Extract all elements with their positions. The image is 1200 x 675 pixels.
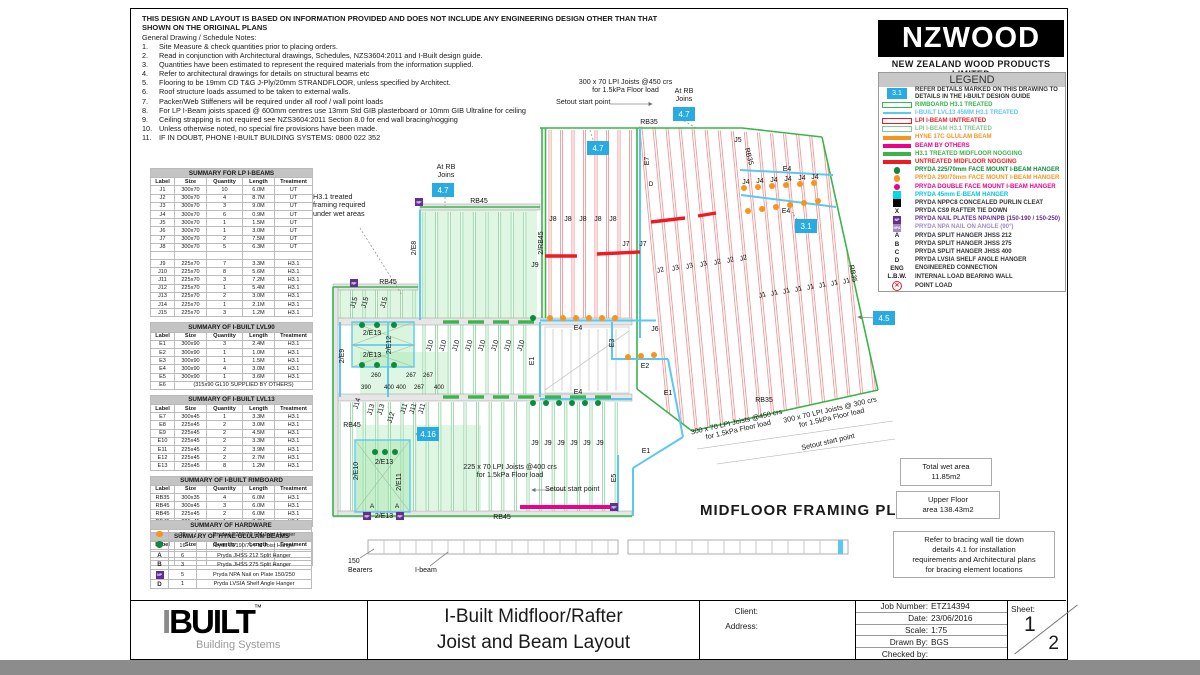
date-value: 23/06/2016 [931,613,973,623]
plan-label: J9 [583,440,591,447]
legend-label: PRYDA NPPC8 CONCEALED PURLIN CLEAT [915,200,1043,207]
hardware-row: A6Pryda JHSS 212 Split Hanger [151,551,312,560]
hanger-290-icon [745,208,751,214]
legend-label: PRYDA CS9 RAFTER TIE DOWN [915,208,1007,215]
plan-label: J2 [713,258,722,267]
table-row: E2300x9011.0MH3.1 [151,348,313,356]
plan-label: J7 [639,241,647,248]
hanger-290-icon [651,352,657,358]
plan-title: MIDFLOOR FRAMING PLAN [700,502,920,519]
client-label: Client: [700,606,758,616]
plan-label: 2/E13 [363,352,381,359]
job-number-value: ETZ14394 [931,601,970,611]
hanger-290-icon [586,315,592,321]
hanger-290-icon [759,206,765,212]
plan-label: J10 [452,339,462,352]
svg-text:NP: NP [398,515,404,519]
plan-label: E2 [641,363,650,370]
hanger-225-icon [530,315,536,321]
plan-label: J13 [377,403,387,416]
plan-label: J13 [367,403,377,416]
note-setout-top: Setout start point [556,98,610,106]
legend-label: LPI I-BEAM UNTREATED [915,118,986,125]
plan-label: RB35 [743,147,754,166]
table-row: J15225x7031.2MH3.1 [151,309,313,317]
hanger-290-icon [573,315,579,321]
table-row: J13225x7023.0MH3.1 [151,292,313,300]
plan-label: A [395,503,400,510]
plan-label: J9 [557,440,565,447]
plan-label: J9 [544,440,552,447]
plan-label: RB35 [755,397,773,404]
split-hanger-b-icon: B [157,561,161,568]
hanger-290-icon [547,315,553,321]
plan-label: 400 [396,385,407,391]
hardware-row: B3Pryda JHSS 275 Split Hanger [151,560,312,569]
legend-label: PRYDA NPA NAIL ON ANGLE (90°) [915,224,1013,231]
floor-area-box: Upper Floor area 138.43m2 [896,491,1000,519]
table-row: J4300x7060.9MUT [151,210,313,218]
hanger-225-icon [543,400,549,406]
plan-label: I-beam [415,567,437,574]
detail-reference-label: 4.7 [592,144,604,153]
detail-reference-label: 4.5 [878,314,890,323]
table-row: E8225x4523.0MH3.1 [151,421,313,429]
table-row: J11225x7037.2MH3.1 [151,276,313,284]
note-at-rb-joins-2: At RB Joins [663,87,705,104]
table-row: J9225x7073.3MH3.1 [151,260,313,268]
hanger-290-icon [612,315,618,321]
plan-label: RB45 [379,279,397,286]
notes-heading-1: THIS DESIGN AND LAYOUT IS BASED ON INFOR… [142,14,672,23]
note-h31-treated: H3.1 treated framing required under wet … [313,193,365,218]
legend-label: H3.1 TREATED MIDFLOOR NOGGING [915,150,1022,157]
plan-label: J9 [596,440,604,447]
plan-label: 2/E11 [396,473,403,491]
bearer-detail [360,540,848,566]
legend-label: HYNE 17C GLULAM BEAM [915,134,992,141]
hardware-row: NP5Pryda NPA Nail on Plate 150/250 [151,569,312,579]
drawing-title: I-Built Midfloor/Rafter Joist and Beam L… [368,601,700,659]
plan-label: D [649,181,654,188]
hanger-290-icon [638,353,644,359]
plan-label: 267 [414,385,425,391]
summary-table: SUMMARY OF I-BUILT LVL13LabelSizeQuantit… [150,395,313,471]
sheet-total: 2 [1048,633,1059,655]
plan-label: E1 [664,390,673,397]
plan-label: E4 [783,166,792,173]
title-block: IBUILT™ Building Systems I-Built Midfloo… [130,600,1066,659]
table-row: J2300x7048.7MUT [151,194,313,202]
plan-label: Bearers [348,567,373,574]
table-row: J5300x7011.5MUT [151,219,313,227]
hanger-225-icon [569,400,575,406]
table-row: RB45300x4536.0MH3.1 [151,502,313,510]
hanger-290-icon [599,315,605,321]
ibuilt-logo: IBUILT™ Building Systems [130,601,368,659]
table-row: J10225x7085.6MH3.1 [151,268,313,276]
table-row: E13225x4581.2MH3.1 [151,462,313,470]
note-item: 2.Read in conjunction with Architectural… [142,51,672,60]
legend-label: I-BUILT LVL13 45MM H3.1 TREATED [915,109,1018,116]
plan-label: 2/E9 [339,349,346,364]
framing-plan-drawing: NPNPNPNPNP4.74.74.74.163.14.5RB35RB35RB3… [310,85,910,600]
plan-label: 267 [423,373,434,379]
legend-label: PRYDA 225/70mm FACE MOUNT I-BEAM HANGER [915,167,1059,174]
table-row: E3300x9011.5MH3.1 [151,357,313,365]
plan-label: J5 [734,137,742,144]
plan-label: 267 [406,373,417,379]
nail-plate-icon: NP [156,571,164,579]
svg-text:NP: NP [612,506,618,510]
plan-label: 2/E8 [411,241,418,256]
hardware-row: 16Pryda LF190/70 FM Joist Hanger [151,540,312,551]
drawing-sheet: THIS DESIGN AND LAYOUT IS BASED ON INFOR… [0,0,1200,675]
table-row: RB45225x4526.0MH3.1 [151,510,313,518]
plan-label: 2/E10 [353,462,360,480]
plan-label: E7 [644,157,651,166]
plan-label: E4 [782,208,791,215]
plan-label: J1 [794,285,803,294]
untreated-nogging [597,252,640,254]
table-row: J3300x7039.0MUT [151,202,313,210]
legend-label: PRYDA SPLIT HANGER JHSS 275 [915,240,1012,247]
plan-label: J2 [739,254,748,263]
plan-label: 2/E13 [375,513,393,520]
legend-label: PRYDA NAIL PLATES NPA/NPB (150-190 / 150… [915,216,1060,223]
checked-by-label: Checked by: [856,649,928,659]
plan-label: 2/E13 [375,459,393,466]
plan-label: 390 [361,385,372,391]
scale-value: 1:75 [931,625,947,635]
legend-label: PRYDA 45mm E-BEAM HANGER [915,191,1008,198]
hanger-225-icon [382,449,388,455]
plan-label: E1 [642,448,651,455]
table-row: E10225x4523.3MH3.1 [151,437,313,445]
table-row: E12225x4522.7MH3.1 [151,454,313,462]
table-row: E4300x9043.0MH3.1 [151,365,313,373]
plan-label: A [370,503,375,510]
svg-text:NP: NP [365,515,371,519]
hanger-225-icon [391,362,397,368]
hanger-290-icon [625,354,631,360]
plan-label: J10 [426,339,436,352]
hanger-225-icon [530,400,536,406]
plan-label: J8 [579,216,587,223]
hanger-290-icon [801,200,807,206]
plan-label: J7 [622,241,630,248]
plan-label: J4 [798,175,806,182]
legend-label: UNTREATED MIDFLOOR NOGGING [915,159,1017,166]
untreated-nogging [651,218,685,222]
plan-label: RB45 [470,198,488,205]
plan-label: RB45 [343,422,361,429]
plan-label: J4 [811,174,819,181]
hardware-row: D1Pryda LVSIA Shelf Angle Hanger [151,580,312,589]
hardware-table: SUMMARY OF HARDWARE29Pryda LF290/70 FM J… [150,520,312,589]
hanger-225-icon [372,449,378,455]
plan-label: J12 [387,411,397,424]
hanger-290-icon [560,315,566,321]
plan-label: J9 [570,440,578,447]
plan-label: RB45 [493,514,511,521]
hanger-290-icon [156,531,163,538]
hanger-225-icon [582,400,588,406]
plan-label: J1 [770,289,779,298]
plan-label: J10 [439,339,449,352]
legend-label: RIMBOARD H3.1 TREATED [915,101,993,108]
logo-tm: ™ [254,603,260,612]
table-row: E1300x9032.4MH3.1 [151,340,313,348]
note-item: 3.Quantities have been estimated to repr… [142,60,672,69]
plan-label: J8 [549,216,557,223]
table-row: E6(315x90 GL10 SUPPLIED BY OTHERS) [151,381,313,389]
table-row: RB35300x3546.0MH3.1 [151,493,313,501]
hanger-225-icon [391,322,397,328]
detail-reference-label: 3.1 [800,222,812,231]
note-item: 1.Site Measure & check quantities prior … [142,42,672,51]
note-joists-400: 225 x 70 LPI Joists @400 crs for 1.5kPa … [430,463,590,480]
table-row: J7300x7027.5MUT [151,235,313,243]
plan-label: J4 [742,179,750,186]
address-label: Address: [700,621,758,631]
plan-label: 2/E12 [386,336,393,354]
scale-label: Scale: [856,625,928,635]
legend-label: LPI I-BEAM H3.1 TREATED [915,126,992,133]
plan-label: J2 [656,266,665,275]
table-row [151,251,313,259]
plan-label: RB35 [640,119,658,126]
hardware-row: 29Pryda LF290/70 FM Joist Hanger [151,530,312,541]
plan-label: J4 [784,176,792,183]
plan-label: J6 [651,326,659,333]
legend-label: PRYDA 290/70mm FACE MOUNT I-BEAM HANGER [915,175,1059,182]
hanger-225-icon [156,541,163,548]
date-label: Date: [856,613,928,623]
plan-label: J8 [594,216,602,223]
table-row: J8300x7056.3MUT [151,243,313,251]
summary-tables: SUMMARY FOR LP I-BEAMSLabelSizeQuantityL… [150,168,312,571]
bracing-note-box: Refer to bracing wall tie down details 4… [893,531,1055,578]
plan-label: J1 [782,287,791,296]
plan-label: E1 [529,357,536,366]
plan-label: 400 [434,385,445,391]
table-row: E7300x4513.3MH3.1 [151,413,313,421]
legend-label: BEAM BY OTHERS [915,142,970,149]
drawn-by-label: Drawn By: [856,637,928,647]
detail-reference-label: 4.7 [678,110,690,119]
plan-label: E4 [574,325,583,332]
hanger-225-icon [556,400,562,406]
bottom-taskbar-strip [0,660,1200,675]
legend-label: ENGINEERED CONNECTION [915,265,997,272]
table-row: J1300x70106.0MUT [151,186,313,194]
svg-text:NP: NP [417,201,423,205]
sheet-current: 1 [1024,613,1036,637]
plan-label: 2/E13 [363,330,381,337]
plan-label: J8 [609,216,617,223]
wet-area-box: Total wet area 11.85m2 [900,458,992,486]
hanger-225-icon [595,400,601,406]
legend-label: REFER DETAILS MARKED ON THIS DRAWING TO … [915,87,1065,101]
job-number-label: Job Number: [856,601,928,611]
plan-label: 400 [384,385,395,391]
plan-label: J9 [531,262,539,269]
table-row: J14225x7012.1MH3.1 [151,301,313,309]
plan-label: J4 [756,178,764,185]
hanger-225-icon [359,362,365,368]
table-row: J12225x7015.4MH3.1 [151,284,313,292]
plan-label: 2/RB45 [538,231,545,254]
table-row: E9225x4524.5MH3.1 [151,429,313,437]
plan-label: E5 [611,474,618,483]
detail-reference-label: 4.7 [437,186,449,195]
hanger-225-icon [374,362,380,368]
legend-label: POINT LOAD [915,282,952,289]
split-hanger-a-icon: A [157,552,161,559]
shelf-angle-icon: D [157,581,161,588]
plan-label: J14 [353,397,363,410]
logo-letters: BUILT [169,603,254,640]
detail-reference-label: 4.16 [420,430,436,439]
nzwood-logo: NZWOOD [878,20,1064,57]
hanger-225-icon [359,322,365,328]
plan-label: J9 [531,440,539,447]
plan-label: 150 [348,558,360,565]
legend-label: PRYDA SPLIT HANGER JHSS 400 [915,249,1012,256]
notes-heading-2: SHOWN ON THE ORIGINAL PLANS [142,23,672,32]
client-cell: Client: Address: [700,601,856,659]
plan-label: J8 [564,216,572,223]
sheet-cell: Sheet: 1 2 [1008,601,1066,659]
legend-label: PRYDA LVSIA SHELF ANGLE HANGER [915,257,1027,264]
drawn-by-value: BGS [931,637,949,647]
plan-label: E3 [609,339,616,348]
table-row: E11225x4523.9MH3.1 [151,446,313,454]
table-row: J6300x7013.0MUT [151,227,313,235]
hanger-225-icon [392,449,398,455]
summary-table: SUMMARY FOR LP I-BEAMSLabelSizeQuantityL… [150,168,313,317]
plan-label: J1 [758,291,767,300]
job-cell: Job Number:ETZ14394 Date:23/06/2016 Scal… [856,601,1008,659]
logo-subtitle: Building Systems [196,639,280,651]
legend-label: INTERNAL LOAD BEARING WALL [915,273,1013,280]
plan-label: J2 [726,256,735,265]
legend-label: PRYDA DOUBLE FACE MOUNT I-BEAM HANGER [915,183,1056,190]
summary-table: SUMMARY OF I-BUILT LVL90LabelSizeQuantit… [150,322,313,390]
hanger-290-icon [773,204,779,210]
plan-label: 260 [371,373,382,379]
hanger-225-icon [374,322,380,328]
legend-label: PRYDA SPLIT HANGER JHSS 212 [915,232,1012,239]
svg-text:NP: NP [352,282,358,286]
plan-label: J4 [770,177,778,184]
plan-label: E4 [574,389,583,396]
note-at-rb-joins-1: At RB Joins [425,163,467,180]
notes-intro: General Drawing / Schedule Notes: [142,33,672,42]
table-row: E5300x9013.6MH3.1 [151,373,313,381]
hanger-290-icon [815,198,821,204]
note-setout-bottom: Setout start point [545,485,599,493]
